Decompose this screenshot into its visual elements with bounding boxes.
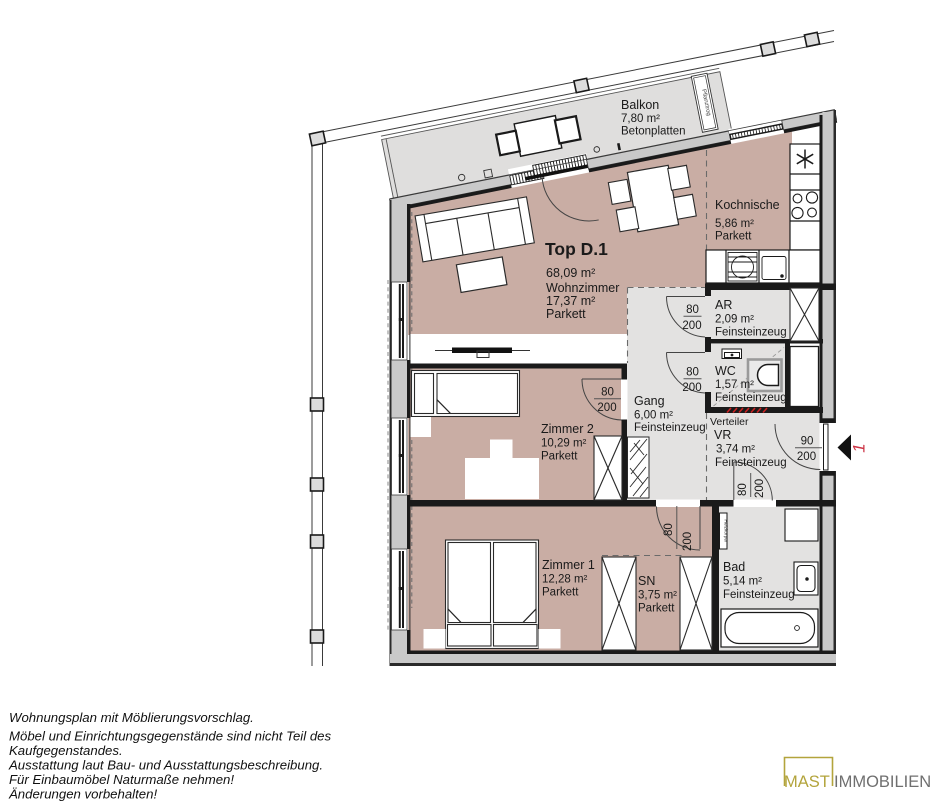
svg-text:2,09 m²: 2,09 m² — [715, 314, 754, 326]
svg-text:5,86 m²: 5,86 m² — [715, 218, 754, 230]
svg-text:Wohnungsplan mit Möblierungsvo: Wohnungsplan mit Möblierungsvorschlag. — [9, 710, 254, 725]
svg-text:Feinsteinzeug: Feinsteinzeug — [715, 457, 787, 469]
svg-text:Ausstattung laut Bau- und Auss: Ausstattung laut Bau- und Ausstattungsbe… — [8, 758, 323, 773]
svg-text:SN: SN — [638, 574, 655, 588]
svg-text:Parkett: Parkett — [542, 587, 579, 599]
svg-text:Feinsteinzeug: Feinsteinzeug — [715, 327, 787, 339]
svg-text:80: 80 — [663, 523, 675, 536]
svg-text:Parkett: Parkett — [541, 451, 578, 463]
svg-text:200: 200 — [682, 382, 701, 394]
svg-text:Parkett: Parkett — [546, 307, 586, 321]
svg-text:3,75 m²: 3,75 m² — [638, 590, 677, 602]
svg-text:Wohnzimmer: Wohnzimmer — [546, 281, 619, 295]
svg-text:5,14 m²: 5,14 m² — [723, 576, 762, 588]
svg-text:Gang: Gang — [634, 394, 665, 408]
svg-text:Feinsteinzeug: Feinsteinzeug — [715, 392, 787, 404]
svg-text:68,09 m²: 68,09 m² — [546, 266, 595, 280]
svg-text:80: 80 — [686, 367, 699, 379]
svg-text:Kochnische: Kochnische — [715, 198, 780, 212]
svg-text:Zimmer 1: Zimmer 1 — [542, 558, 595, 572]
svg-text:Betonplatten: Betonplatten — [621, 126, 686, 138]
svg-text:Parkett: Parkett — [638, 603, 675, 615]
svg-text:Für Einbaumöbel Naturmaße nehm: Für Einbaumöbel Naturmaße nehmen! — [9, 772, 234, 787]
svg-text:200: 200 — [797, 451, 816, 463]
svg-text:Verteiler: Verteiler — [710, 416, 749, 428]
svg-text:200: 200 — [754, 479, 766, 498]
svg-text:Top D.1: Top D.1 — [545, 239, 608, 259]
svg-text:80: 80 — [601, 387, 614, 399]
svg-text:17,37 m²: 17,37 m² — [546, 294, 595, 308]
svg-text:IMMOBILIEN: IMMOBILIEN — [834, 773, 931, 791]
svg-text:6,00 m²: 6,00 m² — [634, 410, 673, 422]
svg-text:200: 200 — [682, 532, 694, 551]
svg-text:Zimmer 2: Zimmer 2 — [541, 422, 594, 436]
svg-text:80: 80 — [686, 304, 699, 316]
svg-text:200: 200 — [597, 402, 616, 414]
svg-text:1,57 m²: 1,57 m² — [715, 379, 754, 391]
svg-text:3,74 m²: 3,74 m² — [716, 444, 755, 456]
svg-text:90: 90 — [801, 436, 814, 448]
svg-text:Kaufgegenstandes.: Kaufgegenstandes. — [9, 743, 123, 758]
svg-text:MAST: MAST — [784, 773, 830, 791]
svg-text:200: 200 — [682, 320, 701, 332]
svg-text:12,28 m²: 12,28 m² — [542, 574, 588, 586]
svg-text:VR: VR — [714, 428, 731, 442]
svg-text:Parkett: Parkett — [715, 231, 752, 243]
svg-text:Heizkörper: Heizkörper — [723, 519, 729, 543]
svg-text:Bad: Bad — [723, 560, 745, 574]
svg-text:1: 1 — [849, 443, 868, 452]
svg-text:Feinsteinzeug: Feinsteinzeug — [723, 589, 795, 601]
svg-text:Balkon: Balkon — [621, 98, 659, 112]
svg-text:10,29 m²: 10,29 m² — [541, 438, 587, 450]
svg-text:Feinsteinzeug: Feinsteinzeug — [634, 422, 706, 434]
svg-text:WC: WC — [715, 364, 736, 378]
svg-text:Möbel und Einrichtungsgegenstä: Möbel und Einrichtungsgegenstände sind n… — [9, 729, 331, 744]
svg-text:Änderungen vorbehalten!: Änderungen vorbehalten! — [8, 787, 157, 802]
svg-text:AR: AR — [715, 298, 732, 312]
svg-text:80: 80 — [737, 483, 749, 496]
svg-text:7,80 m²: 7,80 m² — [621, 113, 660, 125]
